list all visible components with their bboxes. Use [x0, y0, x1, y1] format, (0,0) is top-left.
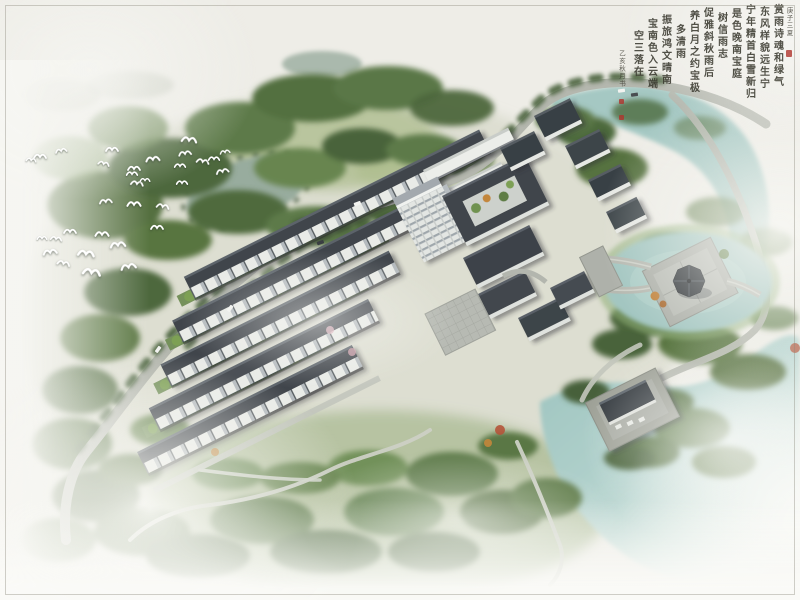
pavilion: [673, 265, 705, 297]
rendering-canvas: 庚子三夏 赏雨诗魂和绿气 东风样貌远生宁 宁年精首白雪新归 是色晚南宝庭 树信雨…: [0, 0, 800, 600]
aerial-scene: [0, 0, 800, 600]
